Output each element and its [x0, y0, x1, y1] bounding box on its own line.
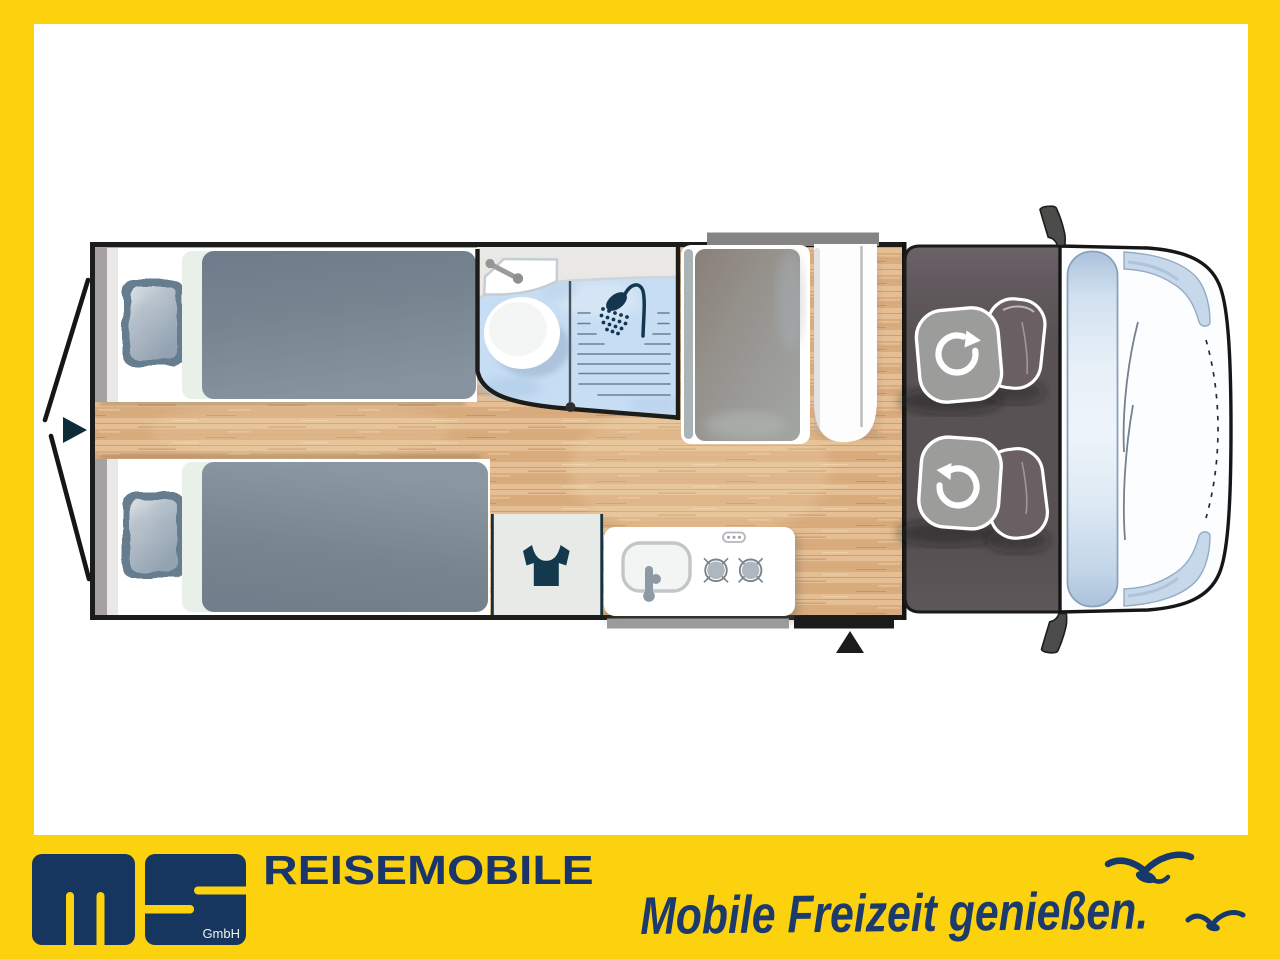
svg-text:GmbH: GmbH	[202, 926, 240, 941]
